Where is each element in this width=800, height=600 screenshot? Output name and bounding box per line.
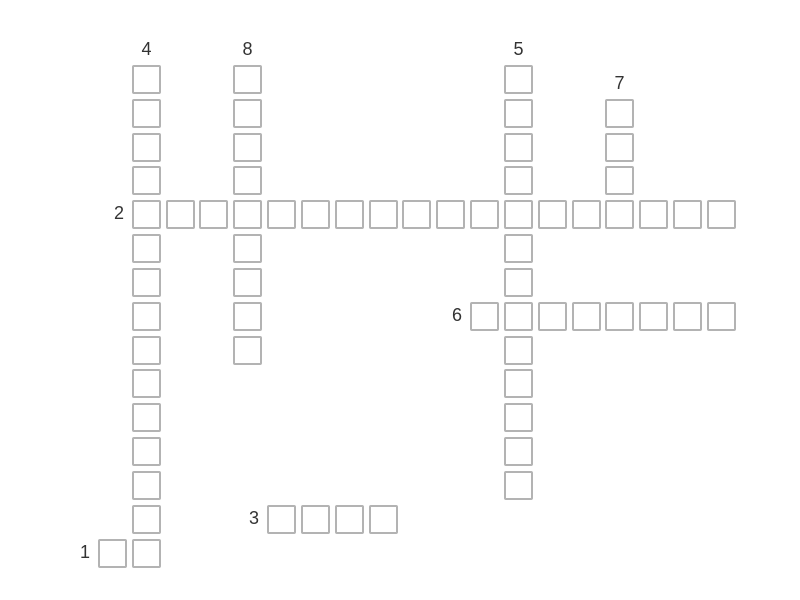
clue-number-3: 3 — [229, 504, 259, 533]
crossword-cell[interactable] — [267, 200, 296, 229]
crossword-cell[interactable] — [335, 200, 364, 229]
clue-number-6: 6 — [432, 301, 462, 330]
crossword-cell[interactable] — [605, 99, 634, 128]
crossword-cell[interactable] — [504, 65, 533, 94]
clue-number-4: 4 — [132, 39, 161, 59]
crossword-cell[interactable] — [132, 369, 161, 398]
crossword-cell[interactable] — [267, 505, 296, 534]
crossword-cell[interactable] — [504, 99, 533, 128]
clue-number-1: 1 — [60, 538, 90, 567]
clue-number-2: 2 — [94, 199, 124, 228]
crossword-cell[interactable] — [673, 200, 702, 229]
crossword-cell[interactable] — [538, 302, 567, 331]
crossword-cell[interactable] — [639, 302, 668, 331]
crossword-cell[interactable] — [504, 166, 533, 195]
crossword-cell[interactable] — [233, 234, 262, 263]
crossword-cell[interactable] — [504, 403, 533, 432]
crossword-cell[interactable] — [504, 234, 533, 263]
crossword-cell[interactable] — [132, 471, 161, 500]
crossword-cell[interactable] — [301, 200, 330, 229]
crossword-cell[interactable] — [504, 336, 533, 365]
crossword-cell[interactable] — [707, 302, 736, 331]
clue-number-8: 8 — [233, 39, 262, 59]
crossword-cell[interactable] — [504, 302, 533, 331]
crossword-cell[interactable] — [132, 403, 161, 432]
crossword-cell[interactable] — [132, 234, 161, 263]
crossword-cell[interactable] — [504, 133, 533, 162]
clue-number-5: 5 — [504, 39, 533, 59]
crossword-cell[interactable] — [707, 200, 736, 229]
crossword-cell[interactable] — [504, 268, 533, 297]
crossword-cell[interactable] — [504, 200, 533, 229]
crossword-grid: 12345678 — [0, 0, 800, 600]
crossword-cell[interactable] — [132, 336, 161, 365]
crossword-cell[interactable] — [233, 99, 262, 128]
crossword-cell[interactable] — [233, 65, 262, 94]
crossword-cell[interactable] — [233, 302, 262, 331]
crossword-cell[interactable] — [436, 200, 465, 229]
crossword-cell[interactable] — [132, 133, 161, 162]
crossword-cell[interactable] — [369, 200, 398, 229]
crossword-cell[interactable] — [504, 437, 533, 466]
crossword-cell[interactable] — [233, 166, 262, 195]
crossword-cell[interactable] — [504, 369, 533, 398]
crossword-cell[interactable] — [402, 200, 431, 229]
crossword-cell[interactable] — [605, 302, 634, 331]
crossword-cell[interactable] — [132, 268, 161, 297]
crossword-cell[interactable] — [301, 505, 330, 534]
crossword-cell[interactable] — [132, 166, 161, 195]
crossword-cell[interactable] — [639, 200, 668, 229]
crossword-cell[interactable] — [605, 133, 634, 162]
crossword-cell[interactable] — [233, 200, 262, 229]
crossword-cell[interactable] — [572, 302, 601, 331]
crossword-cell[interactable] — [369, 505, 398, 534]
crossword-cell[interactable] — [132, 200, 161, 229]
crossword-cell[interactable] — [233, 336, 262, 365]
crossword-cell[interactable] — [132, 437, 161, 466]
crossword-cell[interactable] — [605, 166, 634, 195]
crossword-cell[interactable] — [335, 505, 364, 534]
crossword-cell[interactable] — [538, 200, 567, 229]
crossword-cell[interactable] — [166, 200, 195, 229]
crossword-cell[interactable] — [132, 505, 161, 534]
crossword-cell[interactable] — [605, 200, 634, 229]
crossword-cell[interactable] — [233, 133, 262, 162]
crossword-cell[interactable] — [470, 302, 499, 331]
crossword-cell[interactable] — [470, 200, 499, 229]
crossword-cell[interactable] — [504, 471, 533, 500]
crossword-cell[interactable] — [233, 268, 262, 297]
crossword-cell[interactable] — [572, 200, 601, 229]
crossword-cell[interactable] — [132, 65, 161, 94]
crossword-cell[interactable] — [132, 539, 161, 568]
crossword-cell[interactable] — [673, 302, 702, 331]
clue-number-7: 7 — [605, 73, 634, 93]
crossword-cell[interactable] — [132, 99, 161, 128]
crossword-cell[interactable] — [199, 200, 228, 229]
crossword-cell[interactable] — [98, 539, 127, 568]
crossword-cell[interactable] — [132, 302, 161, 331]
